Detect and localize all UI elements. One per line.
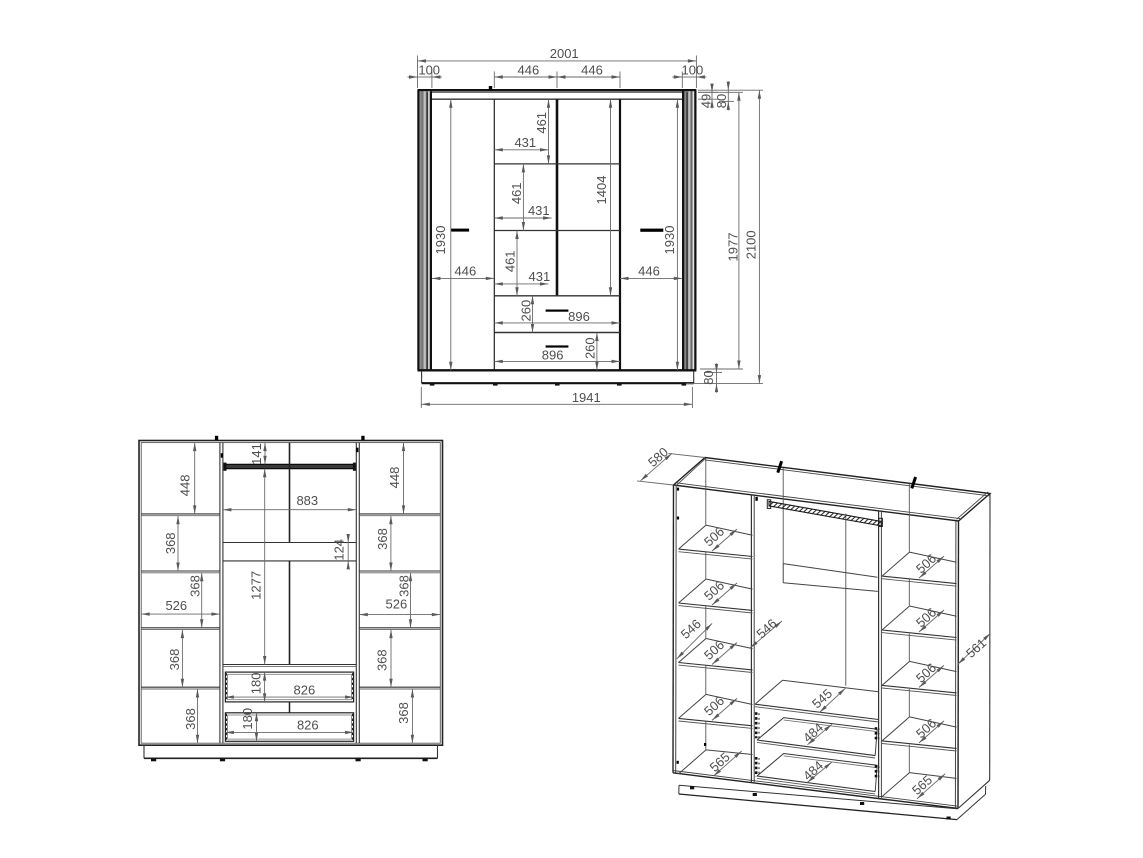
svg-text:1404: 1404	[594, 176, 609, 205]
svg-text:1277: 1277	[248, 571, 263, 600]
svg-text:368: 368	[396, 702, 411, 724]
svg-text:368: 368	[163, 532, 178, 554]
svg-text:448: 448	[387, 467, 402, 489]
svg-text:100: 100	[418, 62, 440, 77]
svg-text:1930: 1930	[433, 226, 448, 255]
svg-text:180: 180	[240, 708, 255, 730]
svg-text:446: 446	[638, 263, 660, 278]
svg-text:1930: 1930	[662, 226, 677, 255]
svg-text:526: 526	[386, 597, 408, 612]
svg-text:526: 526	[165, 598, 187, 613]
svg-text:461: 461	[509, 182, 524, 204]
svg-text:368: 368	[183, 708, 198, 730]
svg-text:180: 180	[249, 673, 264, 695]
svg-text:1941: 1941	[572, 390, 601, 405]
svg-text:368: 368	[375, 528, 390, 550]
svg-text:124: 124	[332, 539, 347, 561]
svg-text:368: 368	[188, 575, 203, 597]
svg-text:368: 368	[374, 649, 389, 671]
svg-text:2001: 2001	[550, 46, 579, 61]
svg-text:141: 141	[249, 443, 264, 465]
svg-text:368: 368	[396, 575, 411, 597]
svg-text:883: 883	[296, 493, 318, 508]
svg-text:260: 260	[582, 337, 597, 359]
svg-text:80: 80	[701, 370, 716, 384]
svg-text:80: 80	[714, 94, 729, 108]
svg-text:461: 461	[534, 112, 549, 134]
svg-text:2100: 2100	[744, 230, 759, 259]
svg-text:1977: 1977	[725, 233, 740, 262]
svg-text:260: 260	[519, 300, 534, 322]
svg-text:826: 826	[294, 682, 316, 697]
svg-text:461: 461	[503, 250, 518, 272]
svg-text:431: 431	[528, 203, 550, 218]
svg-text:896: 896	[542, 347, 564, 362]
svg-text:368: 368	[167, 649, 182, 671]
svg-text:446: 446	[518, 62, 540, 77]
svg-text:49: 49	[698, 94, 713, 108]
svg-text:826: 826	[297, 718, 319, 733]
svg-text:100: 100	[682, 62, 704, 77]
svg-text:896: 896	[568, 309, 590, 324]
svg-text:431: 431	[529, 269, 551, 284]
svg-text:446: 446	[455, 263, 477, 278]
svg-text:448: 448	[178, 475, 193, 497]
svg-text:446: 446	[581, 62, 603, 77]
svg-text:431: 431	[514, 135, 536, 150]
